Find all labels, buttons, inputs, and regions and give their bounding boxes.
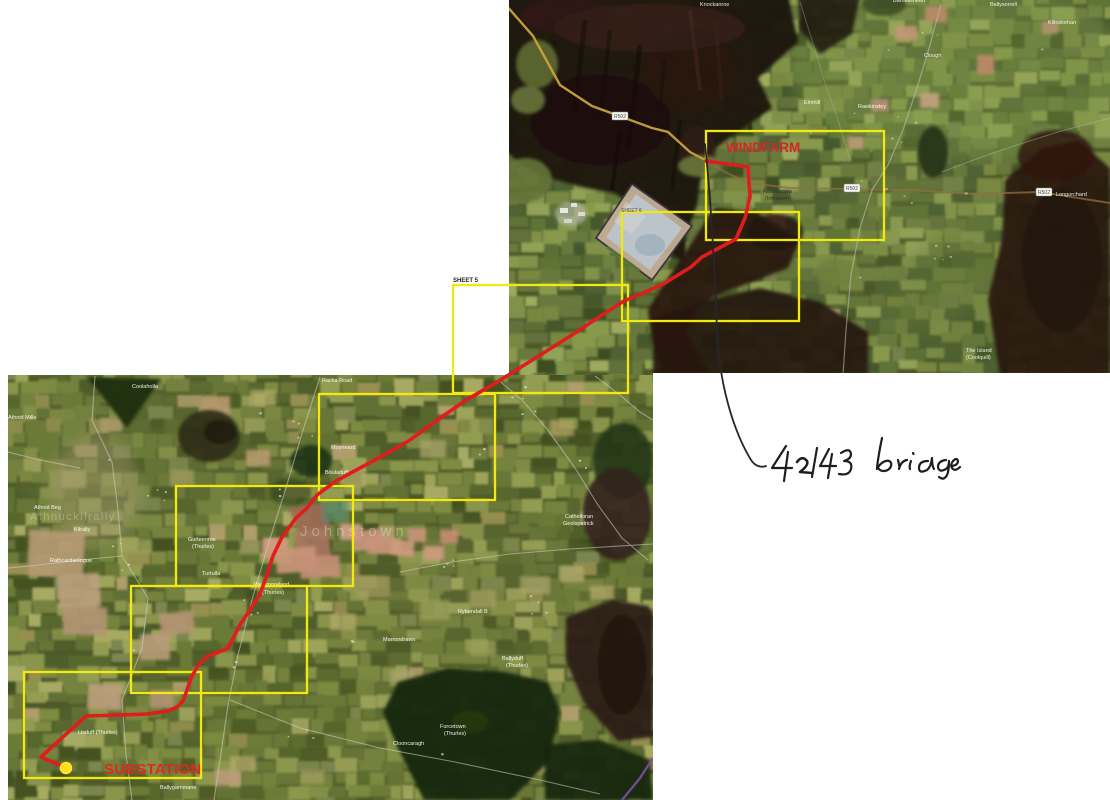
svg-text:Ballyduff: Ballyduff bbox=[502, 656, 523, 662]
svg-text:Coolaholla: Coolaholla bbox=[132, 384, 159, 390]
svg-text:(Thurles): (Thurles) bbox=[262, 590, 284, 596]
svg-text:(Thurles): (Thurles) bbox=[444, 731, 466, 737]
svg-text:Rathcardanlogue: Rathcardanlogue bbox=[50, 558, 92, 564]
svg-text:Lisduff (Thurles): Lisduff (Thurles) bbox=[78, 730, 118, 736]
svg-text:SUBSTATION: SUBSTATION bbox=[104, 761, 201, 778]
svg-text:(Thurles): (Thurles) bbox=[506, 663, 528, 669]
svg-text:Killoskehan: Killoskehan bbox=[1048, 20, 1076, 26]
svg-text:Rybendall B: Rybendall B bbox=[458, 609, 488, 615]
svg-text:WINDFARM: WINDFARM bbox=[726, 140, 800, 155]
svg-text:SHEET 6: SHEET 6 bbox=[621, 208, 642, 214]
svg-text:Kilrally: Kilrally bbox=[74, 527, 90, 533]
svg-text:Moyneard: Moyneard bbox=[331, 445, 355, 451]
svg-text:The Island: The Island bbox=[966, 348, 992, 354]
svg-text:Gurteenroe: Gurteenroe bbox=[188, 537, 216, 543]
svg-text:Ballysorrell: Ballysorrell bbox=[990, 2, 1017, 8]
svg-text:Racka Road: Racka Road bbox=[322, 378, 352, 384]
svg-text:Athnid Mille: Athnid Mille bbox=[8, 415, 36, 421]
svg-text:(Thurles): (Thurles) bbox=[192, 544, 214, 550]
svg-text:(Coolquill): (Coolquill) bbox=[966, 355, 991, 361]
svg-text:Barnalisheen: Barnalisheen bbox=[893, 0, 925, 4]
svg-text:(Infirdown): (Infirdown) bbox=[765, 196, 791, 202]
svg-text:Longorchard: Longorchard bbox=[1056, 192, 1087, 198]
svg-text:R502: R502 bbox=[614, 114, 626, 120]
svg-text:R502: R502 bbox=[846, 186, 858, 192]
svg-text:R502: R502 bbox=[1038, 190, 1050, 196]
svg-text:Elmhill: Elmhill bbox=[804, 100, 820, 106]
svg-text:Rawntanlea: Rawntanlea bbox=[763, 189, 793, 195]
svg-text:Knockanroe: Knockanroe bbox=[700, 2, 729, 8]
svg-text:Ballygammane: Ballygammane bbox=[160, 785, 196, 791]
svg-text:Furcetown: Furcetown bbox=[440, 724, 466, 730]
svg-text:Rawkinstey: Rawkinstey bbox=[858, 104, 886, 110]
svg-text:SHEET 5: SHEET 5 bbox=[453, 278, 479, 284]
svg-text:Cathelloran: Cathelloran bbox=[565, 514, 593, 520]
svg-text:Marrondrawn: Marrondrawn bbox=[383, 637, 415, 643]
svg-text:Athnid Beg: Athnid Beg bbox=[34, 505, 61, 511]
svg-text:Athnuckilrally: Athnuckilrally bbox=[30, 511, 116, 523]
svg-text:Clooncaragh: Clooncaragh bbox=[393, 741, 424, 747]
svg-text:Turtulla: Turtulla bbox=[202, 571, 221, 577]
svg-text:Clough: Clough bbox=[924, 53, 941, 59]
svg-text:Geolspatrick: Geolspatrick bbox=[563, 521, 594, 527]
